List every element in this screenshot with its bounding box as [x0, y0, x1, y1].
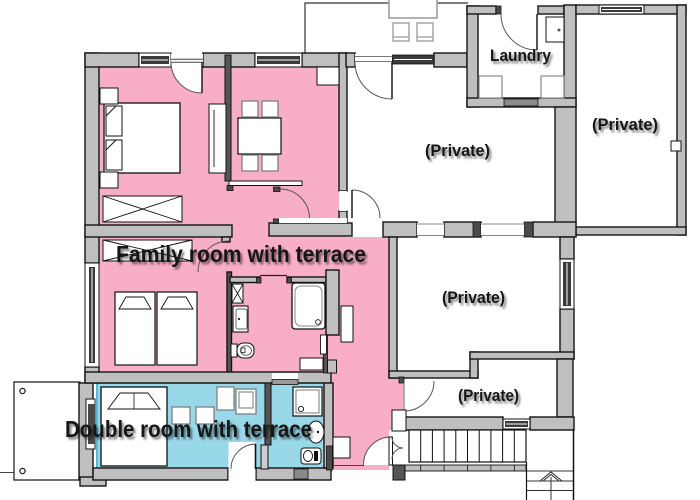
svg-text:(Private): (Private)	[592, 116, 658, 134]
svg-text:Family room with terrace: Family room with terrace	[116, 241, 366, 267]
svg-text:(Private): (Private)	[442, 289, 505, 307]
svg-text:Double room with terrace: Double room with terrace	[65, 416, 312, 442]
svg-text:(Private): (Private)	[458, 387, 519, 405]
svg-text:(Private): (Private)	[425, 142, 490, 160]
svg-text:Laundry: Laundry	[490, 46, 551, 65]
